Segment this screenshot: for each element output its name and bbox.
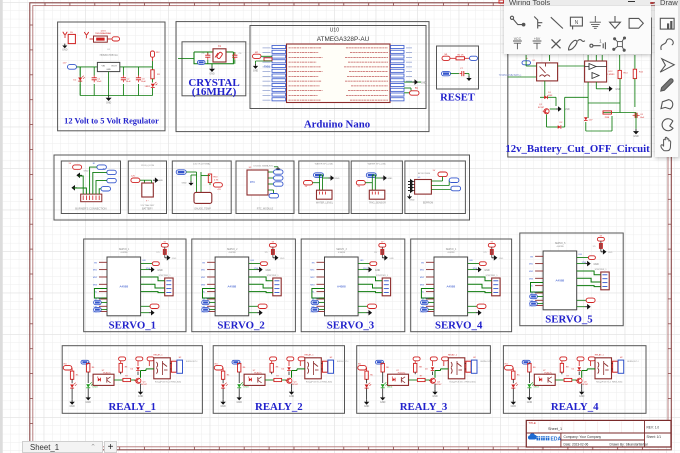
svg-text:RELAY_1: RELAY_1 [595, 354, 605, 357]
svg-text:ATMEGA328P-AU: ATMEGA328P-AU [317, 36, 370, 43]
svg-text:+5V: +5V [217, 189, 221, 191]
svg-text:BC547: BC547 [582, 384, 588, 386]
svg-text:LED1: LED1 [145, 86, 151, 88]
svg-text:REALY_2: REALY_2 [255, 401, 303, 413]
svg-text:Arduino Nano: Arduino Nano [304, 119, 370, 131]
svg-text:12V4 (+)CON: 12V4 (+)CON [141, 165, 155, 167]
svg-text:EDA: EDA [551, 437, 562, 443]
svg-text:LED: LED [469, 260, 473, 262]
svg-text:12V: 12V [156, 52, 160, 54]
svg-text:PRE: PRE [605, 117, 610, 119]
svg-text:GND: GND [511, 405, 517, 408]
svg-text:STEPPER_1: STEPPER_1 [158, 275, 171, 277]
svg-text:N: N [575, 20, 579, 26]
svg-text:REALY_3: REALY_3 [400, 401, 448, 413]
svg-text:GND: GND [335, 178, 340, 180]
svg-text:Sheet_1: Sheet_1 [548, 427, 562, 431]
svg-text:10uF: 10uF [97, 81, 103, 83]
svg-text:GND: GND [432, 395, 438, 398]
svg-text:A4988: A4988 [446, 285, 455, 289]
svg-text:A4988: A4988 [556, 279, 565, 283]
svg-text:RESET: RESET [440, 92, 475, 103]
svg-text:RELAY_1: RELAY_1 [154, 354, 164, 357]
svg-text:WATER_LEVEL: WATER_LEVEL [316, 202, 334, 205]
svg-text:125: 125 [483, 252, 486, 254]
svg-text:LM393: LM393 [608, 74, 615, 76]
svg-text:4-WIRE: 4-WIRE [447, 252, 455, 254]
svg-text:4-WIRE: 4-WIRE [338, 252, 346, 254]
svg-text:GND: GND [364, 405, 370, 408]
svg-text:SERVO_1: SERVO_1 [109, 319, 156, 331]
svg-text:STEPPER_1: STEPPER_1 [595, 269, 608, 271]
svg-text:SERVO_2: SERVO_2 [227, 249, 238, 251]
svg-text:GND: GND [265, 269, 271, 272]
svg-text:125: 125 [374, 252, 377, 254]
svg-text:10uF: 10uF [640, 117, 645, 119]
svg-text:Relay(PCB 5V+1 HW01-S06): Relay(PCB 5V+1 HW01-S06) [155, 382, 182, 384]
svg-text:7805/DC7R5V1A: 7805/DC7R5V1A [99, 54, 118, 57]
svg-text:12V: 12V [63, 63, 67, 65]
svg-text:5V: 5V [415, 87, 418, 90]
svg-text:TRIG_SENSOR: TRIG_SENSOR [369, 202, 386, 205]
svg-text:Relay(PCB 5V+1 HW01-S06): Relay(PCB 5V+1 HW01-S06) [596, 382, 623, 384]
svg-text:BC547: BC547 [292, 384, 298, 386]
svg-text:SERVO_5: SERVO_5 [545, 313, 592, 325]
svg-text:(16MHZ): (16MHZ) [192, 86, 237, 98]
svg-text:LED4: LED4 [387, 387, 393, 389]
svg-text:GND: GND [86, 401, 92, 404]
svg-text:GND: GND [106, 102, 112, 105]
svg-text:4-WIRE: 4-WIRE [120, 252, 128, 254]
svg-text:LED: LED [142, 260, 146, 262]
svg-text:GND: GND [387, 178, 392, 180]
svg-text:+: + [526, 56, 528, 60]
svg-text:GND: GND [280, 258, 285, 260]
svg-text:A4988: A4988 [228, 285, 237, 289]
svg-text:LED4: LED4 [92, 387, 98, 389]
svg-text:SERVO_1: SERVO_1 [119, 249, 130, 251]
svg-text:BURN-OUT-#: BURN-OUT-# [186, 361, 199, 363]
svg-text:BC547: BC547 [436, 384, 442, 386]
svg-text:GND: GND [182, 183, 187, 185]
svg-text:GND: GND [421, 81, 427, 84]
svg-text:7805DRAWBAR: 7805DRAWBAR [95, 32, 111, 35]
svg-text:4-WIRE: 4-WIRE [228, 252, 236, 254]
svg-text:SERVO_3: SERVO_3 [327, 319, 375, 331]
svg-text:Relay(PCB 5V+1 HW01-S06): Relay(PCB 5V+1 HW01-S06) [449, 382, 476, 384]
svg-text:WATER SP (+)VAL: WATER SP (+)VAL [368, 163, 387, 166]
svg-text:GND: GND [389, 258, 394, 260]
svg-text:R2 1K: R2 1K [457, 54, 464, 56]
svg-text:BATTERY: BATTERY [142, 208, 153, 211]
svg-text:Date: 2023-02-06: Date: 2023-02-06 [564, 442, 589, 446]
svg-text:GND: GND [157, 269, 163, 272]
svg-text:LED4: LED4 [534, 387, 540, 389]
svg-text:GND: GND [209, 73, 215, 76]
svg-text:4-WIRE: 4-WIRE [556, 246, 564, 248]
svg-text:GND: GND [172, 258, 177, 260]
svg-text:RTC_MODULE: RTC_MODULE [257, 208, 274, 211]
svg-text:BURN-OUT-#: BURN-OUT-# [337, 361, 350, 363]
svg-text:Sheet: 1/1: Sheet: 1/1 [647, 435, 662, 439]
svg-text:SERVO_2: SERVO_2 [217, 319, 264, 331]
svg-text:REALY_1: REALY_1 [108, 401, 156, 413]
svg-text:RELAY_1: RELAY_1 [305, 354, 315, 357]
svg-text:STEPPER_1: STEPPER_1 [267, 275, 280, 277]
svg-text:BURNER'S CONNECTION: BURNER'S CONNECTION [75, 207, 106, 211]
svg-text:10uF: 10uF [141, 81, 147, 83]
svg-text:GND: GND [579, 395, 585, 398]
svg-text:STEPPER_1: STEPPER_1 [485, 275, 498, 277]
svg-text:U10: U10 [330, 28, 339, 34]
svg-text:GND: GND [253, 69, 259, 72]
svg-text:TITLE:: TITLE: [529, 421, 537, 425]
svg-text:Drawn By: Sikandarfakhar: Drawn By: Sikandarfakhar [610, 442, 649, 446]
svg-text:D-B-YP-(2YGMA): D-B-YP-(2YGMA) [193, 163, 211, 166]
svg-text:Relay(PCB 5V+1 HW01-S06): Relay(PCB 5V+1 HW01-S06) [306, 382, 333, 384]
svg-text:12V: 12V [589, 120, 593, 122]
svg-text:SERVO_4: SERVO_4 [446, 249, 457, 251]
svg-text:GND: GND [484, 269, 490, 272]
svg-text:TXD1: TXD1 [264, 66, 271, 69]
svg-text:REALY_4: REALY_4 [551, 401, 599, 413]
svg-text:GND: GND [220, 405, 226, 408]
svg-text:BC547: BC547 [538, 107, 545, 109]
svg-text:GND: GND [633, 135, 639, 138]
svg-text:LED4: LED4 [243, 387, 249, 389]
svg-text:REV: 1.0: REV: 1.0 [647, 426, 660, 430]
svg-text:WATER SP (+)VAL: WATER SP (+)VAL [315, 163, 334, 166]
svg-text:GND: GND [106, 69, 111, 71]
svg-text:GND: GND [499, 258, 504, 260]
svg-text:LED: LED [250, 260, 254, 262]
svg-text:GND: GND [410, 200, 415, 202]
svg-text:BURN-OUT-#: BURN-OUT-# [481, 361, 494, 363]
svg-text:GND: GND [237, 401, 243, 404]
svg-text:GND: GND [375, 269, 381, 272]
svg-text:RELAY_1: RELAY_1 [448, 354, 458, 357]
svg-text:BC547: BC547 [141, 384, 147, 386]
svg-text:GND: GND [593, 263, 599, 266]
svg-text:TP4056-USB2 BAT(+): TP4056-USB2 BAT(+) [499, 74, 522, 77]
svg-text:4.7K: 4.7K [214, 179, 219, 181]
svg-text:GND: GND [527, 401, 533, 404]
svg-text:125: 125 [264, 252, 267, 254]
svg-text:SERVO_5: SERVO_5 [555, 243, 566, 245]
svg-text:125: 125 [156, 252, 159, 254]
svg-text:STEPPER_1: STEPPER_1 [376, 275, 389, 277]
svg-text:DS3231 SNMA-RTC: DS3231 SNMA-RTC [253, 165, 273, 168]
svg-text:125: 125 [592, 246, 595, 248]
svg-text:AT24C256M: AT24C256M [418, 172, 430, 175]
svg-text:EEPROM: EEPROM [423, 202, 433, 205]
svg-text:LED: LED [578, 254, 582, 256]
svg-text:Company: Your Company: Company: Your Company [564, 435, 602, 439]
svg-text:GND: GND [289, 395, 295, 398]
svg-text:SERVO_4: SERVO_4 [435, 319, 483, 331]
svg-text:+ -: + - [146, 200, 149, 203]
svg-text:GND: GND [62, 49, 68, 52]
svg-text:GND: GND [158, 180, 163, 182]
svg-text:VIN: VIN [102, 65, 106, 67]
svg-text:RTC: RTC [250, 180, 255, 184]
svg-text:10uF: 10uF [126, 81, 132, 83]
svg-text:GND: GND [608, 252, 613, 254]
svg-text:A4988: A4988 [337, 285, 346, 289]
svg-text:VOUT: VOUT [111, 65, 117, 67]
svg-text:GND: GND [564, 108, 570, 111]
svg-text:GND: GND [138, 395, 144, 398]
svg-text:1: 1 [599, 38, 602, 43]
svg-text:GND: GND [380, 401, 386, 404]
svg-text:GND: GND [84, 171, 89, 173]
svg-text:LED: LED [360, 260, 364, 262]
svg-text:A4988: A4988 [119, 285, 128, 289]
svg-text:BURN-OUT-#: BURN-OUT-# [627, 361, 640, 363]
svg-text:GND: GND [69, 405, 75, 408]
svg-text:SERVO_3: SERVO_3 [336, 249, 347, 251]
svg-text:GAUGE_TEMP: GAUGE_TEMP [194, 208, 211, 211]
svg-text:12 Volt to 5 Volt Regulator: 12 Volt to 5 Volt Regulator [64, 116, 159, 125]
svg-text:12v_Battery_Cut_OFF_Circuit: 12v_Battery_Cut_OFF_Circuit [505, 143, 650, 155]
